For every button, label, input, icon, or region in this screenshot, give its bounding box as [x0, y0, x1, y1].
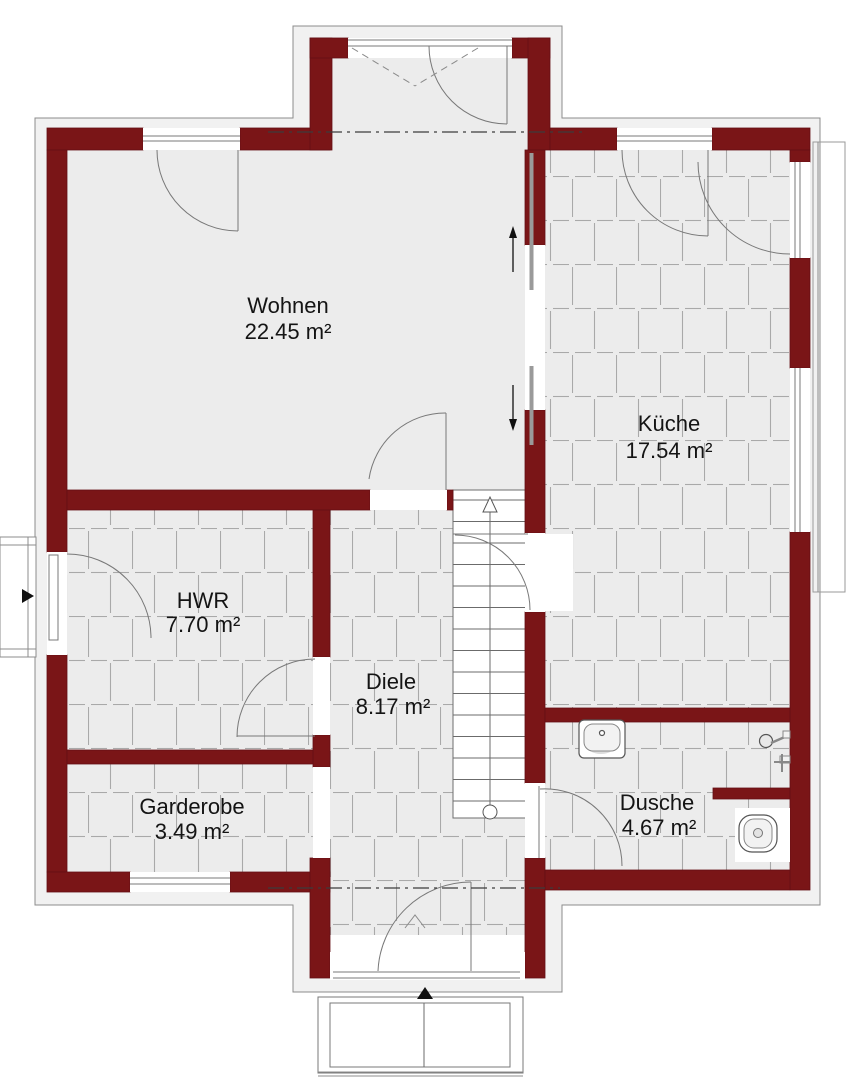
side-entrance-steps: [0, 537, 36, 657]
room-label-hwr: HWR: [177, 588, 230, 613]
stair-start-marker: [483, 805, 497, 819]
room-label-diele: Diele: [366, 669, 416, 694]
right-exterior-sill: [813, 142, 845, 592]
room-area-garderobe: 3.49 m²: [155, 819, 230, 844]
bay-floor: [332, 58, 528, 150]
room-label-wohnen: Wohnen: [247, 293, 329, 318]
room-area-dusche: 4.67 m²: [622, 815, 697, 840]
toilet-icon: [735, 808, 790, 862]
entrance-steps: [318, 987, 523, 1076]
room-label-dusche: Dusche: [620, 790, 695, 815]
room-label-garderobe: Garderobe: [139, 794, 244, 819]
room-area-kueche: 17.54 m²: [626, 438, 713, 463]
kueche-right-window: [790, 368, 810, 532]
garderobe-passage: [313, 767, 330, 858]
garderobe-window: [130, 872, 230, 892]
sink-icon: [579, 720, 625, 758]
staircase: [453, 490, 528, 819]
room-label-kueche: Küche: [638, 411, 700, 436]
room-area-hwr: 7.70 m²: [166, 612, 241, 637]
room-area-wohnen: 22.45 m²: [245, 319, 332, 344]
room-area-diele: 8.17 m²: [356, 694, 431, 719]
floor-plan: Wohnen 22.45 m² Küche 17.54 m² HWR 7.70 …: [0, 0, 854, 1080]
